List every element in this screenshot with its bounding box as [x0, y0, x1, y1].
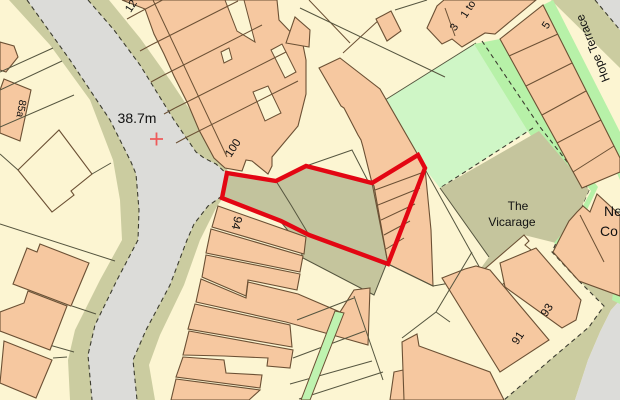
svg-text:The: The [508, 199, 529, 213]
svg-text:Vicarage: Vicarage [488, 215, 535, 229]
svg-text:Ne: Ne [604, 203, 620, 219]
svg-text:38.7m: 38.7m [118, 110, 157, 126]
svg-text:Co: Co [600, 223, 618, 239]
